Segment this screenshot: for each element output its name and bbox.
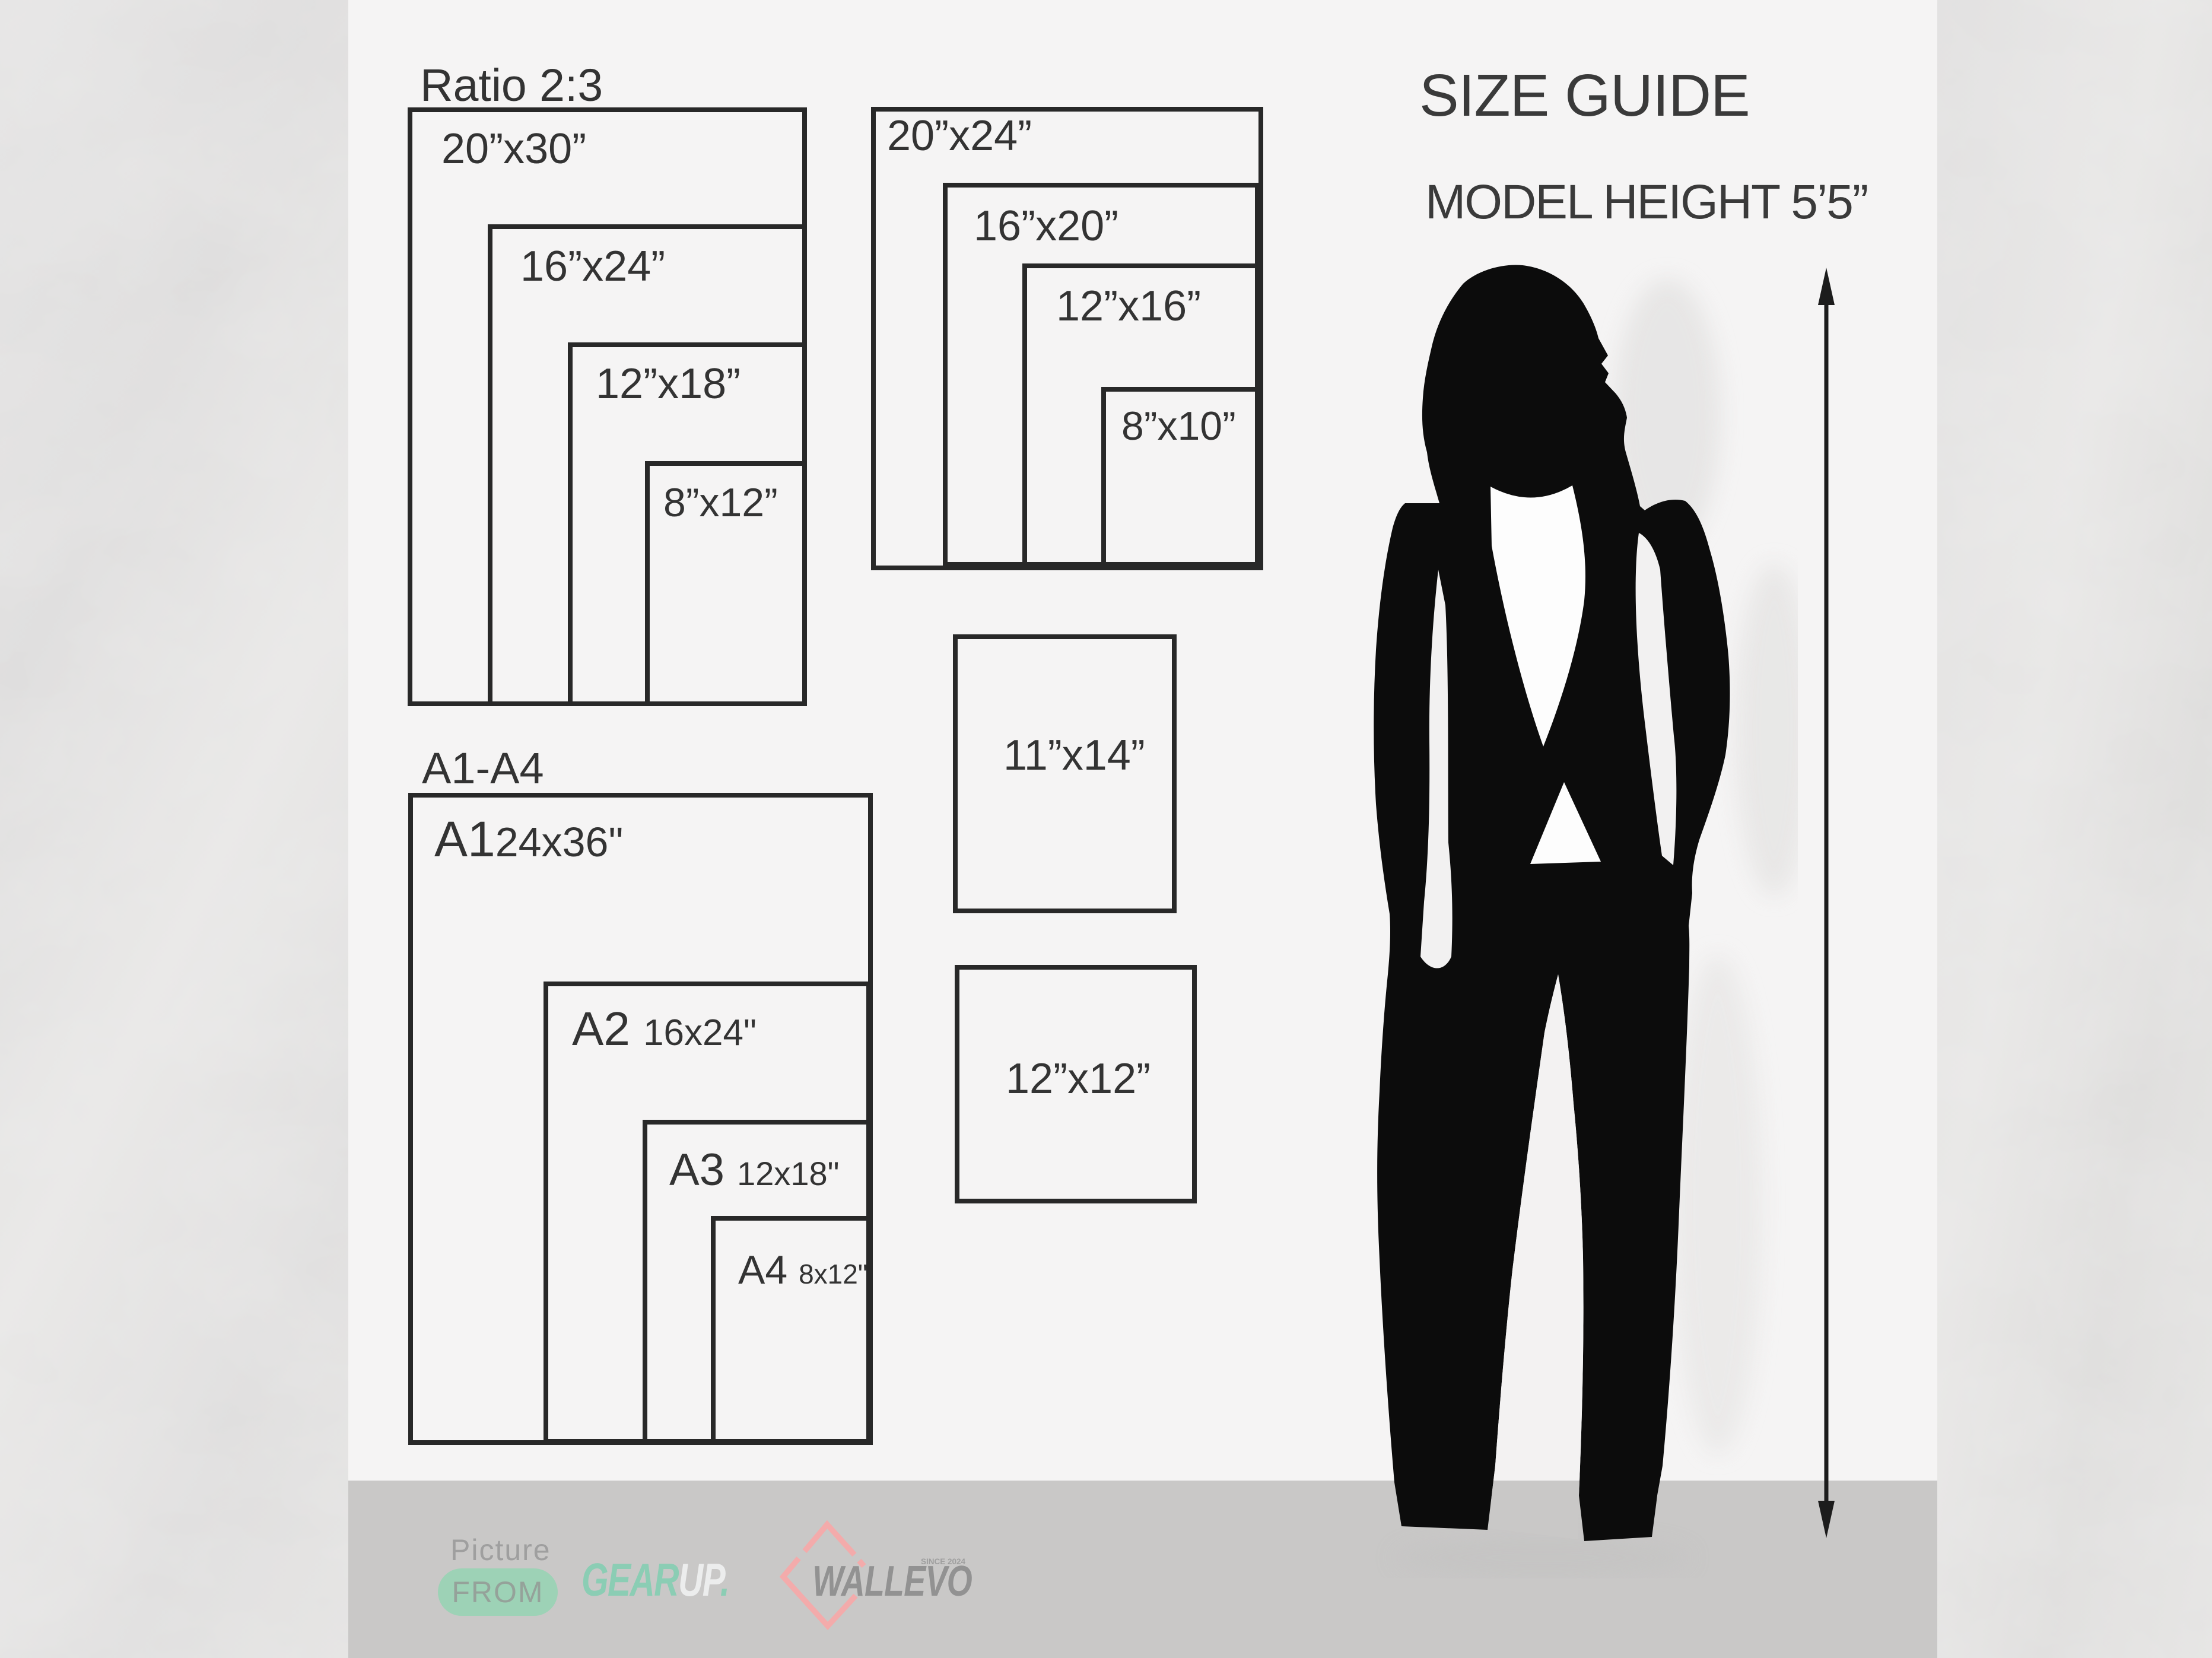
svg-text:WALLEVO: WALLEVO (812, 1557, 972, 1605)
